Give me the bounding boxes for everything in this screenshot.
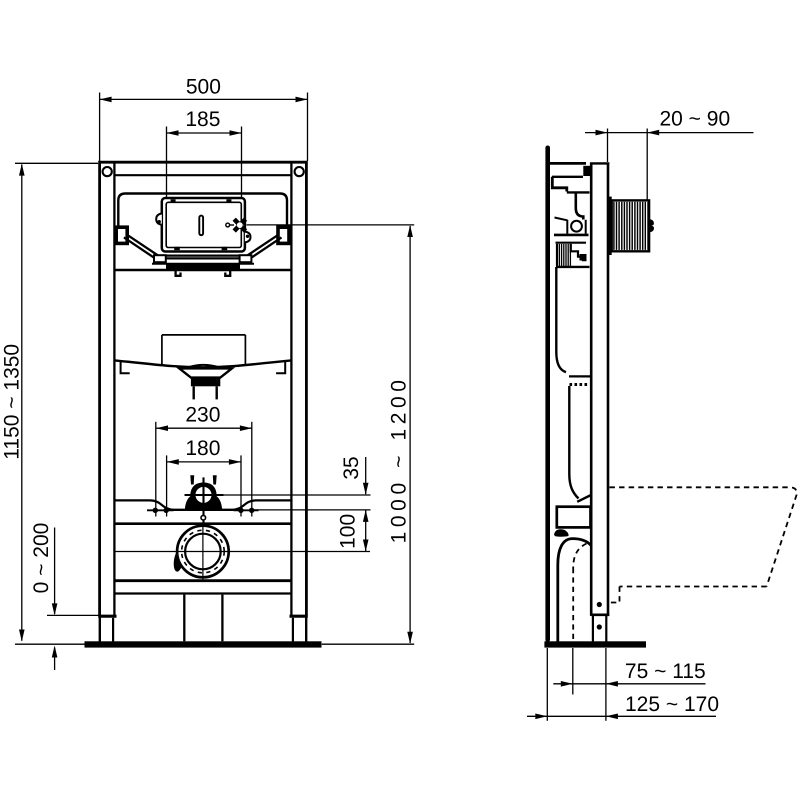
svg-text:75 ~ 115: 75 ~ 115 xyxy=(625,660,706,683)
svg-text:180: 180 xyxy=(185,437,220,460)
svg-text:500: 500 xyxy=(186,76,221,99)
svg-text:1000 ~ 1200: 1000 ~ 1200 xyxy=(387,375,410,543)
svg-text:35: 35 xyxy=(340,456,363,479)
svg-text:0 ~ 200: 0 ~ 200 xyxy=(30,523,53,594)
svg-text:125 ~ 170: 125 ~ 170 xyxy=(625,693,719,716)
svg-text:100: 100 xyxy=(337,514,360,549)
svg-text:185: 185 xyxy=(185,108,220,131)
svg-text:1150 ~ 1350: 1150 ~ 1350 xyxy=(1,344,24,460)
svg-text:20 ~ 90: 20 ~ 90 xyxy=(659,107,730,130)
svg-text:230: 230 xyxy=(185,403,220,426)
